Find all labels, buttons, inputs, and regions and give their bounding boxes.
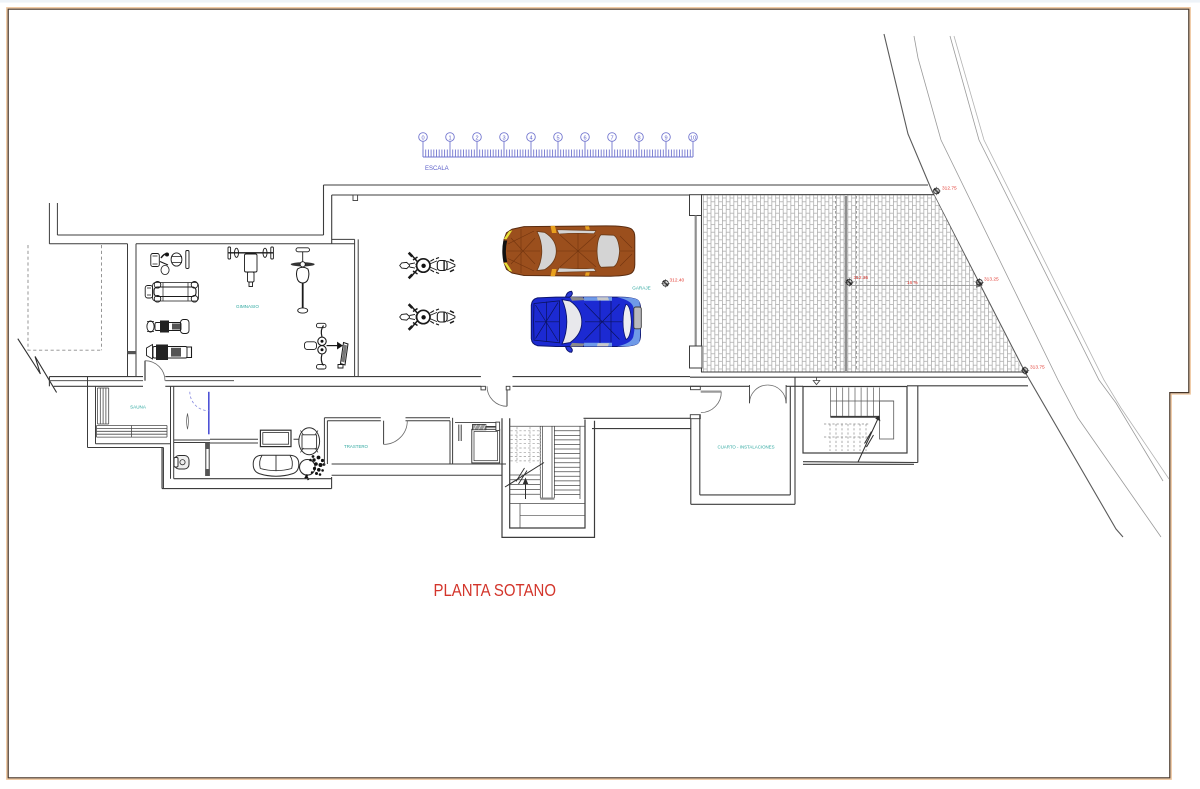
svg-text:3: 3 (502, 135, 505, 141)
svg-text:7: 7 (610, 135, 613, 141)
svg-text:9: 9 (664, 135, 667, 141)
svg-text:8: 8 (637, 135, 640, 141)
svg-text:6: 6 (583, 135, 586, 141)
svg-text:312.75: 312.75 (942, 186, 957, 192)
svg-text:PLANTA SOTANO: PLANTA SOTANO (434, 580, 557, 600)
svg-text:TRASTERO: TRASTERO (344, 444, 368, 449)
svg-text:312.35: 312.35 (854, 275, 869, 281)
svg-text:10: 10 (690, 135, 696, 141)
svg-text:1: 1 (448, 135, 451, 141)
svg-text:313.75: 313.75 (1030, 365, 1045, 371)
svg-text:SAUNA: SAUNA (130, 405, 147, 410)
svg-text:GARAJE: GARAJE (632, 286, 650, 291)
svg-text:4: 4 (529, 135, 532, 141)
svg-text:5: 5 (556, 135, 559, 141)
svg-text:0: 0 (421, 135, 424, 141)
svg-text:2: 2 (475, 135, 478, 141)
svg-text:CUARTO - INSTALACIONES: CUARTO - INSTALACIONES (717, 445, 774, 450)
svg-text:GIMNASIO: GIMNASIO (236, 304, 259, 309)
svg-text:313.25: 313.25 (984, 277, 999, 283)
svg-text:ESCALA: ESCALA (425, 166, 449, 172)
svg-text:16 %: 16 % (907, 280, 919, 286)
svg-text:312.40: 312.40 (670, 278, 685, 284)
